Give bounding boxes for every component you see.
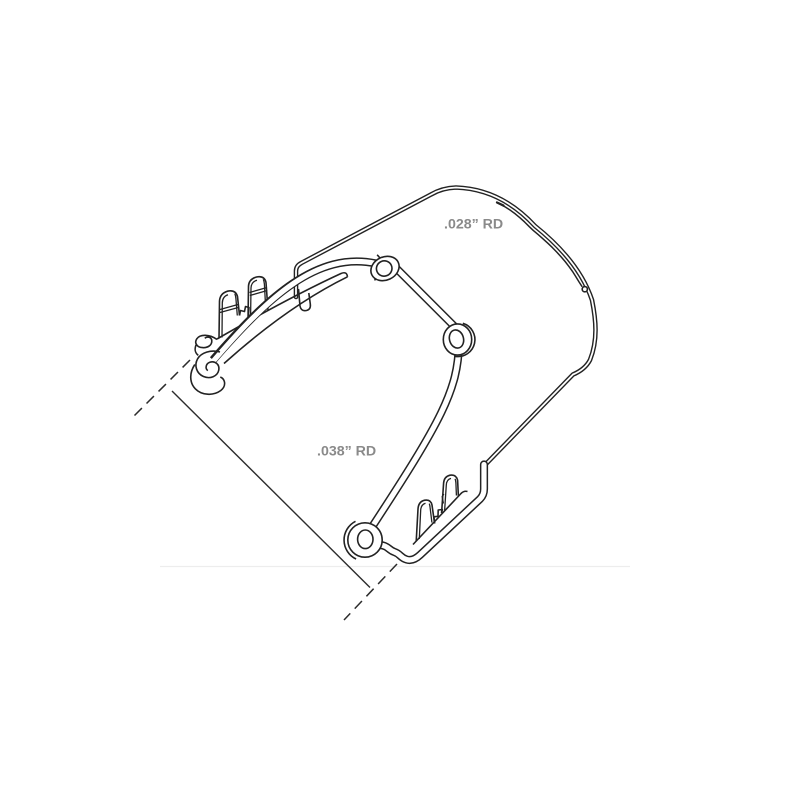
svg-text:.038” RD: .038” RD xyxy=(317,444,376,460)
svg-text:.028” RD: .028” RD xyxy=(444,217,503,233)
